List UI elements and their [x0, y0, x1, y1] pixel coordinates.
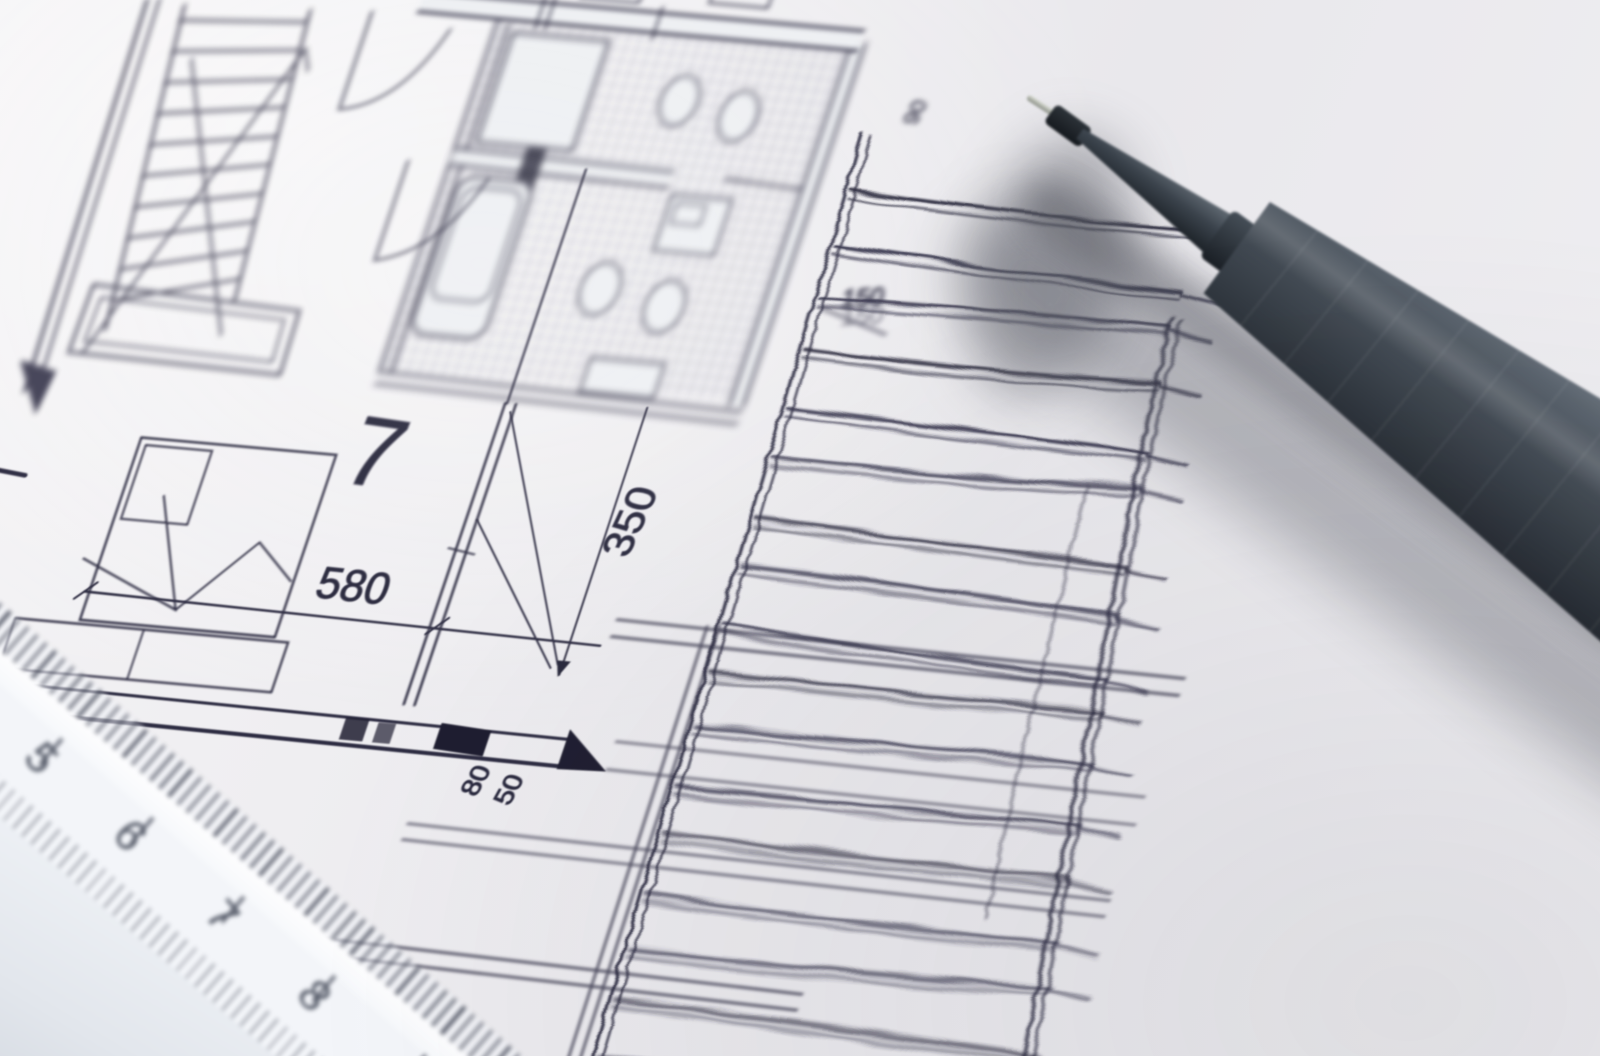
joist-end-stub	[1077, 828, 1122, 838]
joist-line	[657, 833, 1116, 892]
door-swing-arc	[339, 22, 450, 117]
door-leaf	[339, 12, 372, 110]
joist-end-stub	[1115, 620, 1160, 630]
room-number-label: 7	[330, 395, 422, 509]
photo-scene: 90 150 150 7 580	[0, 0, 1600, 1056]
section-marker-triangle	[557, 729, 619, 773]
wall-poche	[432, 723, 492, 756]
section-marker-triangle	[2, 360, 58, 415]
joist-line	[714, 625, 1156, 693]
joist-end-stub	[1124, 571, 1169, 581]
joist-end-stub	[1138, 491, 1183, 501]
dimension-label-90: 90	[898, 97, 932, 127]
bed-symbol	[80, 437, 336, 637]
joist-end-stub	[1047, 991, 1092, 1001]
joist-line	[747, 518, 1175, 581]
dimension-label-350: 350	[593, 482, 668, 560]
joist-line	[638, 894, 1105, 957]
joist-end-stub	[1055, 947, 1100, 957]
joist-line	[706, 672, 1145, 724]
joist-line	[733, 566, 1167, 630]
joist-line	[673, 787, 1123, 838]
door-leaf	[375, 161, 409, 261]
joist-line	[626, 949, 1094, 1001]
joist-line	[770, 455, 1184, 504]
joist-line	[605, 999, 1086, 1056]
partition-wall	[404, 403, 516, 705]
joist-line	[691, 726, 1135, 776]
joist-end-stub	[1067, 883, 1112, 893]
joist-end-stub	[1088, 766, 1133, 776]
dimension-label-580: 580	[309, 559, 397, 615]
bathroom-plan	[373, 11, 866, 424]
staircase-symbol	[2, 0, 400, 435]
dimension-label-150-ghost: 150	[839, 302, 887, 332]
joist-end-stub	[1098, 714, 1143, 724]
cistern-symbol	[579, 358, 664, 398]
